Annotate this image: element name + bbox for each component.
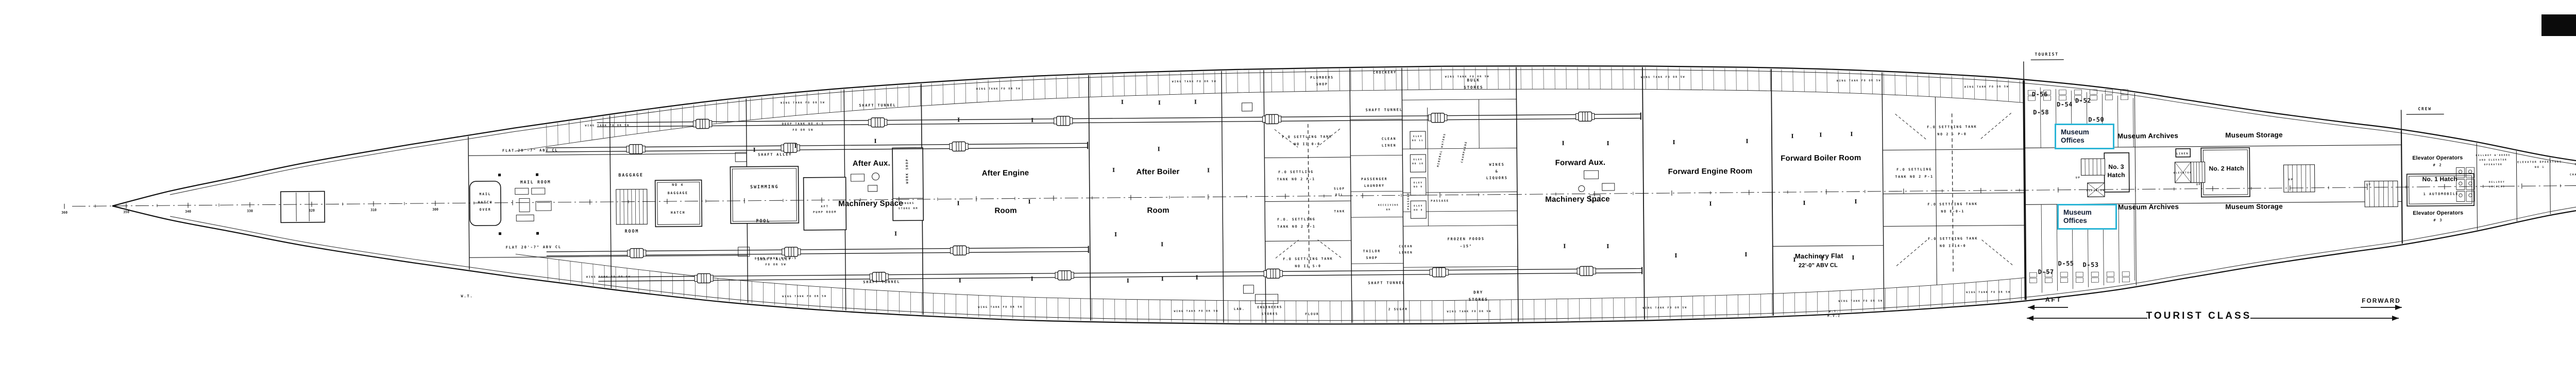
plan-label-linen: LINEN	[1399, 251, 1413, 254]
plan-label-crew: CREW	[2418, 107, 2432, 111]
coupling-flange	[1054, 118, 1057, 124]
plan-label-elev: ELEV	[1413, 135, 1422, 138]
modern-label-after-engine: After Engine	[982, 168, 1029, 178]
plan-label-passage: PASSAGE	[1407, 192, 1410, 210]
museum-offices-line1: Museum	[2063, 209, 2115, 217]
coupling-flange	[870, 274, 872, 280]
plan-label-mail-room: MAIL ROOM	[520, 180, 551, 184]
frame-number-350: 350	[123, 210, 129, 214]
frame-number-310: 310	[370, 208, 377, 212]
plan-label-f-o-settling: F.O SETTLING	[1896, 167, 1932, 172]
plan-label-bellboy-w-drobe: BELLBOY W'DROBE	[2476, 154, 2511, 158]
plan-label-wing-tank-fo-or-sw: WING TANK FO OR SW	[978, 305, 1023, 309]
plan-label-elevator-operators: ELEVATOR OPERATORS	[2517, 161, 2562, 164]
plan-label-tailor: TAILOR	[1363, 249, 1381, 253]
plan-label-wines: WINES	[1489, 163, 1504, 167]
coupling-flange	[1070, 118, 1073, 124]
museum-offices-box: Museum Offices	[2055, 124, 2114, 149]
modern-label-museum-archives: Museum Archives	[2118, 203, 2179, 211]
plan-label-mail: MAIL	[479, 192, 491, 196]
pillar-mark: I	[1674, 252, 1677, 259]
plan-label-swimming: SWIMMING	[750, 184, 778, 189]
modern-label-machinery-flat: Machinery Flat	[1795, 252, 1843, 260]
plan-label-pump-room: PUMP ROOM	[813, 211, 837, 214]
plan-label-shop: SHOP	[1316, 82, 1328, 87]
modern-label-no-1-hatch: No. 1 Hatch	[2422, 175, 2458, 183]
coupling-flange	[885, 119, 887, 126]
plan-label-w-t: W.T.	[1829, 310, 1840, 313]
plan-label-slop: SLOP	[1334, 187, 1345, 191]
arrow-head	[2028, 305, 2035, 310]
plan-label-wing-tank-fo-or-sw: WING TANK FO OR SW	[781, 101, 825, 105]
cabin-d-53: D-53	[2083, 261, 2099, 268]
plan-label-over: OVER	[480, 208, 492, 212]
plan-label-stores: STORES	[1469, 297, 1488, 302]
modern-label-hatch: Hatch	[2107, 171, 2125, 179]
plan-label-no-ii-0-0: NO II 0-0	[1294, 142, 1320, 146]
aft-label: AFT	[2029, 296, 2078, 303]
pillar-mark: I	[1854, 198, 1857, 205]
plan-label-engineers: ENGINEERS	[1257, 305, 1282, 309]
coupling-flange	[1429, 115, 1431, 121]
cabin-d-56: D-56	[2032, 91, 2048, 98]
plan-label-fo-or-sw: FO OR SW	[766, 263, 787, 266]
plan-label-clean: CLEAN	[1382, 136, 1397, 141]
coupling-flange	[782, 249, 785, 255]
pillar-mark: I	[957, 200, 959, 206]
plan-label-operator: OPERATOR	[2484, 163, 2502, 166]
plan-label-shop: SHOP	[1366, 256, 1378, 260]
plan-label-receiving: RECEIVING	[1378, 203, 1399, 206]
tourist-class-label: TOURIST CLASS	[2137, 310, 2261, 322]
plan-label-up: UP	[2076, 176, 2081, 179]
plan-label-no-11: NO 11	[1412, 139, 1424, 142]
deck-plan-page: { "title_block": { "label": "\u201CD\u20…	[0, 0, 2576, 380]
modern-label-elevator-operators: Elevator Operators	[2412, 154, 2463, 161]
plan-label-deep-tank-no-4-5: DEEP TANK NO 4-5	[782, 123, 824, 126]
marker-dot	[536, 174, 538, 176]
coupling-flange	[797, 145, 800, 151]
coupling-flange	[781, 145, 784, 151]
plan-label-shaft-alley: SHAFT ALLEY	[758, 152, 792, 157]
modern-label-room: Room	[1147, 206, 1169, 215]
plan-label-f-o-settling: F.O SETTLING	[1278, 170, 1314, 175]
coupling-flange	[1279, 116, 1281, 122]
pillar-mark: I	[874, 138, 876, 145]
plan-label-f-o-settling-tank: F.O SETTLING TANK	[1927, 202, 1977, 206]
plan-label-baggage: BAGGAGE	[668, 191, 688, 195]
plan-label-lab: LAB.	[1234, 307, 1245, 311]
frame-number-300: 300	[432, 208, 438, 212]
museum-offices-line2: Offices	[2063, 217, 2115, 225]
plan-label-2: # 2	[2433, 163, 2442, 167]
pillar-mark: I	[753, 147, 756, 153]
plan-label-wing-tank-fo-or-sw: WING TANK FO OR SW	[1642, 306, 1687, 310]
marker-dot	[536, 232, 539, 235]
plan-label-elev: ELEV	[1414, 181, 1423, 184]
plan-label-bulk: BULK	[1467, 78, 1480, 82]
plan-label-hatch: HATCH	[478, 200, 493, 204]
plan-label-up: UP	[2196, 183, 2201, 186]
compartment-box	[730, 166, 799, 223]
plan-label-oil: OIL	[1335, 193, 1344, 197]
coupling-flange	[709, 120, 712, 127]
coupling-flange	[643, 250, 646, 256]
arrow-head	[2395, 305, 2402, 310]
plan-label-dry: DRY	[1473, 290, 1483, 295]
coupling-flange	[642, 146, 645, 152]
modern-label-room: Room	[994, 206, 1016, 215]
frame-number-340: 340	[185, 210, 191, 214]
coupling-flange	[694, 275, 697, 282]
pillar-mark: I	[1207, 167, 1210, 174]
museum-offices-line2: Offices	[2061, 136, 2113, 145]
plan-label-elevator: ELEVATOR	[2087, 189, 2105, 192]
pillar-mark: I	[1791, 133, 1793, 140]
pillar-mark: I	[1031, 275, 1033, 282]
pillar-mark: I	[1709, 200, 1711, 207]
plan-label-elev: ELEV	[1413, 158, 1422, 161]
modern-label-elevator-operators: Elevator Operators	[2413, 210, 2463, 216]
coupling-flange	[626, 146, 629, 152]
modern-label-22-0-abv-cl: 22'-0" ABV CL	[1799, 262, 1838, 269]
coupling-flange	[628, 250, 630, 256]
plan-label-wing-tank-fo-or-sw: WING TANK FO OR SW	[1172, 80, 1217, 83]
cabin-d-55: D-55	[2058, 260, 2074, 267]
pillar-mark: I	[1121, 99, 1124, 106]
plan-label-flat-20-7-abv-cl: FLAT 20'-7" ABV CL	[506, 245, 562, 250]
pillar-mark: I	[1112, 167, 1115, 174]
plan-label-room: ROOM	[625, 229, 639, 234]
plan-label-wing-tank-fo-or-sw: WING TANK FO OR SW	[1964, 85, 2009, 89]
plan-label-plumbers: PLUMBERS	[1310, 75, 1334, 79]
plan-label-wing-tank-fo-or-sw: WING TANK FO OR SW	[1174, 309, 1218, 313]
coupling-flange	[1446, 269, 1448, 275]
plan-label-fo-or-sw: FO OR SW	[792, 129, 814, 132]
coupling-flange	[798, 249, 801, 255]
plan-label-no-9: NO 9	[1414, 185, 1423, 188]
pillar-mark: I	[1194, 99, 1197, 106]
plan-label-1-automobile: 1 AUTOMOBILE	[2424, 192, 2459, 196]
arrow-head	[2027, 316, 2033, 321]
cabin-d-58: D-58	[2033, 109, 2049, 116]
coupling-flange	[1280, 270, 1282, 277]
plan-label-shaft-tunnel: SHAFT TUNNEL	[1365, 108, 1402, 112]
plan-label-tourist: TOURIST	[2035, 52, 2058, 57]
pillar-mark: I	[1031, 117, 1033, 124]
deck-plan-drawing: 360350340330320310300IIIIIIIIIIIIIIIIIII…	[0, 0, 2576, 380]
plan-label-f-o-settling-tank: F.O SETTLING TANK	[1927, 125, 1977, 129]
deck-title-block: “D” DECK	[2541, 14, 2576, 36]
pillar-mark: I	[1158, 99, 1161, 106]
pillar-mark: I	[1606, 243, 1609, 250]
plan-label-no-1: NO 1	[2535, 166, 2545, 169]
plan-label-passage: PASSAGE	[1431, 200, 1449, 203]
modern-label-after-boiler: After Boiler	[1136, 167, 1179, 177]
coupling-flange	[710, 275, 713, 281]
pillar-mark: I	[1745, 138, 1748, 145]
pillar-mark: I	[1819, 132, 1822, 139]
compartment-box	[655, 180, 702, 227]
frame-number-330: 330	[247, 209, 253, 213]
pillar-mark: I	[1606, 140, 1609, 147]
stairs	[2191, 162, 2205, 182]
plan-label-3: # 3	[2433, 218, 2443, 222]
arrow-head	[2392, 316, 2399, 321]
coupling-flange	[1577, 268, 1580, 274]
plan-label-up: UP	[2289, 178, 2294, 181]
plan-label-tank: TANK	[1334, 210, 1345, 213]
coupling-flange	[951, 248, 953, 254]
cabin-d-50: D-50	[2088, 116, 2104, 123]
coupling-flange	[886, 274, 888, 280]
coupling-flange	[967, 247, 969, 253]
plan-label-up: UP	[2366, 183, 2371, 186]
coupling-flange	[1055, 272, 1058, 279]
pillar-mark: I	[1850, 131, 1853, 137]
coupling-flange	[1263, 116, 1265, 123]
museum-offices-line1: Museum	[2061, 128, 2113, 136]
plan-label-linen: LINEN	[2176, 152, 2189, 156]
pillar-mark: I	[1161, 241, 1163, 248]
plan-label-2-sugar: 2 SUGAR	[1388, 307, 1408, 311]
pillar-mark: I	[1562, 140, 1564, 147]
plan-label-wing-tank-fo-or-sw: WING TANK FO OR SW	[1641, 76, 1686, 79]
plan-label-tank-no-2-p-1: TANK NO 2 P-1	[1895, 175, 1933, 179]
coupling-flange	[1592, 113, 1595, 119]
plan-label-laundry: LAUNDRY	[1364, 184, 1385, 188]
pillar-mark: I	[894, 230, 897, 237]
plan-label-stores: STORES	[1464, 85, 1483, 90]
plan-label-and-elevator: AND ELEVATOR	[2479, 159, 2507, 162]
ship-hull-group: 360350340330320310300IIIIIIIIIIIIIIIIIII…	[60, 46, 2576, 335]
plan-label-elev: ELEV	[1414, 204, 1423, 208]
coupling-flange	[1576, 114, 1579, 120]
pillar-mark: I	[1852, 254, 1854, 261]
coupling-flange	[1593, 268, 1596, 274]
pillar-mark: I	[1028, 198, 1030, 205]
plan-label-no-8: NO 8	[1414, 209, 1423, 212]
pillar-mark: I	[957, 116, 960, 123]
pillar-mark: I	[1196, 274, 1198, 281]
plan-label-wing-tank-fo-or-sw: WING TANK FO OR SW	[976, 87, 1021, 91]
modern-label-machinery-space: Machinery Space	[1545, 195, 1610, 204]
plan-label-f-o-settling-tank: F.O SETTLING TANK	[1928, 236, 1978, 241]
plan-label-wing-tank-fo-or-sw: WING TANK FO OR SW	[585, 124, 630, 128]
plan-label-tank-no-2-p-1: TANK NO 2 P-1	[1277, 177, 1315, 182]
plan-label-no-i-14-0: NO I-14-0	[1940, 244, 1966, 248]
plan-label-f-o-settling-tank: F.O SETTLING TANK	[1283, 256, 1333, 261]
plan-label-no-e-0-1: NO E-0-1	[1941, 209, 1964, 213]
pillar-mark: I	[1744, 251, 1747, 258]
cabin-d-57: D-57	[2038, 268, 2054, 275]
plan-label-engrs: ENGRS	[902, 202, 914, 205]
modern-label-museum-storage: Museum Storage	[2225, 131, 2283, 139]
plan-label-tank-no-2-s-1: TANK NO 2 S-1	[1277, 224, 1315, 229]
pillar-mark: I	[959, 277, 961, 284]
modern-label-forward-engine-room: Forward Engine Room	[1668, 167, 1753, 176]
marker-dot	[498, 174, 501, 176]
plan-label-flour: FLOUR	[1305, 313, 1319, 316]
plan-label-linen: LINEN	[1382, 143, 1397, 147]
plan-label-hatch: HATCH	[671, 211, 686, 215]
modern-label-no-2-hatch: No. 2 Hatch	[2209, 165, 2244, 172]
modern-label-museum-storage: Museum Storage	[2225, 202, 2283, 211]
plan-label-elevator: ELEVATOR	[2174, 171, 2192, 175]
plan-label-no-10: NO 10	[1412, 162, 1424, 165]
coupling-flange	[965, 143, 968, 149]
plan-label-shaft-tunnel: SHAFT TUNNEL	[1368, 281, 1405, 285]
plan-label-aft: AFT	[821, 205, 828, 209]
pillar-mark: I	[794, 143, 796, 149]
plan-label-no-4: NO 4	[672, 183, 684, 187]
museum-offices-box: Museum Offices	[2057, 204, 2117, 230]
frame-number-320: 320	[309, 209, 315, 213]
plan-label-pool: POOL	[756, 218, 770, 223]
coupling-flange	[1071, 272, 1074, 279]
pillar-mark: I	[1114, 231, 1117, 238]
pillar-mark: I	[1803, 200, 1805, 206]
frame-number-360: 360	[61, 211, 67, 215]
plan-label-wing-tank-fo-or-sw: WING TANK FO OR SW	[782, 295, 827, 299]
cabin-d-52: D-52	[2075, 97, 2091, 104]
plan-label-wing-tank-fo-or-sw: WING TANK FO OR SW	[1966, 291, 2011, 295]
modern-label-machinery-space: Machinery Space	[838, 199, 903, 208]
plan-label-deep-tank-no-4-5: DEEP TANK NO 4-5	[755, 257, 797, 261]
plan-label-lockers: LOCKERS	[2489, 185, 2505, 188]
crew-underline	[2406, 114, 2444, 115]
plan-label-rm: RM	[1386, 209, 1391, 212]
modern-label-no-3: No. 3	[2108, 163, 2124, 170]
plan-label-w-t: W.T.	[461, 294, 473, 298]
plan-label-wing-tank-fo-or-sw: WING TANK FO OR SW	[1445, 75, 1490, 79]
plan-label-liquors: LIQUORS	[1486, 176, 1508, 180]
compartment-box	[281, 192, 325, 223]
coupling-flange	[1264, 271, 1266, 277]
plan-label-no-2-p-0: NO 2 - P-0	[1937, 132, 1967, 136]
plan-label-wing-tank-fo-or-sw: WING TANK FO OR SW	[1447, 310, 1492, 314]
plan-label-wing-tank-fo-or-sw: WING TANK FO OR SW	[1838, 300, 1883, 303]
plan-label-crockery: CROCKERY	[1373, 70, 1397, 74]
cabin-d-54: D-54	[2057, 101, 2073, 108]
plan-label-shaft-tunnel: SHAFT TUNNEL	[863, 280, 900, 284]
modern-label-forward-boiler-room: Forward Boiler Room	[1781, 153, 1861, 163]
plan-label-no-ii-s-0: NO II S-0	[1295, 264, 1321, 268]
plan-label-stores: STORES	[1262, 312, 1279, 316]
plan-label-chain-lkr-over: CHAIN LKR OVER	[2570, 173, 2576, 177]
marker-dot	[499, 232, 501, 235]
plan-label-bellboy: BELLBOY	[2489, 181, 2505, 184]
plan-label-15: -15°	[1460, 244, 1472, 248]
tourist-underline	[2031, 60, 2064, 60]
plan-label-frozen-foods: FROZEN FOODS	[1447, 237, 1484, 241]
plan-label-shaft-tunnel: SHAFT TUNNEL	[859, 103, 896, 108]
modern-label-museum-archives: Museum Archives	[2117, 132, 2178, 140]
plan-label-passenger: PASSENGER	[1361, 177, 1387, 181]
modern-label-forward-aux: Forward Aux.	[1555, 158, 1605, 167]
modern-label-after-aux: After Aux.	[853, 159, 890, 168]
plan-label-clean: CLEAN	[1399, 245, 1413, 248]
compartment-box	[2201, 148, 2250, 197]
pillar-mark: I	[1672, 139, 1675, 146]
pillar-mark: I	[1127, 278, 1129, 284]
plan-label-f-o-settling-tank: F.O SETTLING TANK	[1282, 134, 1332, 139]
coupling-flange	[950, 144, 952, 150]
plan-label-: &	[1495, 169, 1498, 174]
plan-label-m-v-z: M.V.Z	[1827, 315, 1841, 318]
coupling-flange	[693, 121, 696, 127]
forward-label: FORWARD	[2345, 297, 2417, 304]
plan-label-wing-tank-fo-or-sw: WING TANK FO OR SW	[586, 275, 631, 279]
plan-label-f-o-settling: F.O. SETTLING	[1277, 217, 1315, 222]
pillar-mark: I	[1563, 243, 1566, 250]
pillar-mark: I	[1158, 146, 1160, 152]
plan-label-baggage: BAGGAGE	[618, 172, 643, 178]
plan-label-wing-tank-fo-or-sw: WING TANK FO OR SW	[1837, 79, 1882, 83]
plan-label-work-shop: WORK SHOP	[905, 159, 909, 184]
coupling-flange	[1445, 115, 1447, 121]
coupling-flange	[1430, 269, 1432, 275]
plan-label-flat-20-7-abv-cl: FLAT 20'-7" ABV CL	[502, 148, 558, 153]
coupling-flange	[869, 119, 871, 126]
pillar-mark: I	[1161, 275, 1164, 282]
